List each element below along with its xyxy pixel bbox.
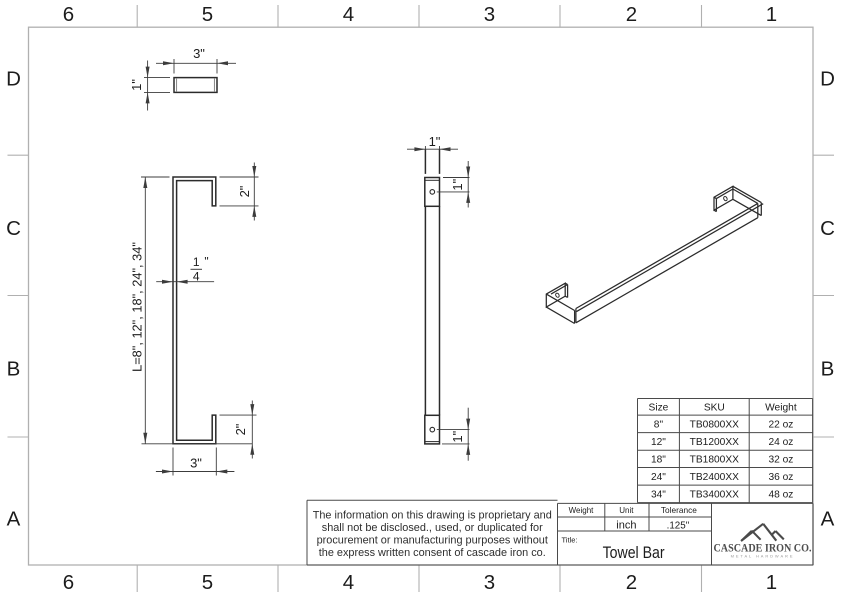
svg-text:A: A — [821, 507, 835, 530]
svg-text:6: 6 — [63, 571, 74, 594]
svg-text:8": 8" — [654, 420, 664, 431]
svg-text:1": 1" — [450, 178, 465, 190]
svg-text:1": 1" — [429, 134, 441, 149]
svg-text:D: D — [6, 67, 21, 90]
svg-text:3": 3" — [193, 46, 205, 61]
svg-text:The information on this drawin: The information on this drawing is propr… — [313, 509, 552, 521]
svg-text:1": 1" — [129, 79, 144, 91]
svg-text:TB1200XX: TB1200XX — [690, 437, 739, 448]
svg-text:3: 3 — [484, 3, 495, 26]
svg-text:Towel Bar: Towel Bar — [603, 544, 666, 562]
svg-text:6: 6 — [63, 3, 74, 26]
svg-text:3": 3" — [190, 456, 202, 471]
svg-text:C: C — [6, 217, 21, 240]
svg-text:32 oz: 32 oz — [768, 455, 793, 466]
svg-text:2": 2" — [237, 185, 252, 197]
svg-text:Size: Size — [649, 403, 669, 414]
svg-text:4: 4 — [343, 571, 354, 594]
svg-text:24 oz: 24 oz — [768, 437, 793, 448]
svg-text:Unit: Unit — [619, 506, 634, 515]
svg-text:2: 2 — [626, 571, 637, 594]
svg-text:Weight: Weight — [765, 403, 797, 414]
svg-text:5: 5 — [202, 571, 213, 594]
svg-text:24": 24" — [651, 472, 666, 483]
svg-text:2": 2" — [233, 423, 248, 435]
svg-text:C: C — [820, 217, 835, 240]
svg-text:Title:: Title: — [562, 535, 578, 544]
svg-text:TB1800XX: TB1800XX — [690, 455, 739, 466]
svg-text:1: 1 — [193, 255, 200, 269]
svg-text:2: 2 — [626, 3, 637, 26]
svg-text:34": 34" — [651, 490, 666, 501]
svg-text:22 oz: 22 oz — [768, 420, 793, 431]
svg-text:D: D — [820, 67, 835, 90]
svg-text:TB2400XX: TB2400XX — [690, 472, 739, 483]
svg-text:1: 1 — [766, 3, 777, 26]
svg-text:shall not be disclosed., used,: shall not be disclosed., used, or duplic… — [322, 522, 543, 534]
svg-text:1": 1" — [450, 430, 465, 442]
svg-text:1: 1 — [766, 571, 777, 594]
svg-text:Weight: Weight — [569, 506, 595, 515]
svg-text:3: 3 — [484, 571, 495, 594]
svg-text:": " — [204, 255, 208, 269]
svg-text:4: 4 — [343, 3, 354, 26]
svg-text:4: 4 — [193, 270, 200, 284]
svg-text:METAL HARDWARE: METAL HARDWARE — [731, 554, 795, 559]
svg-text:the express written consent of: the express written consent of cascade i… — [319, 547, 546, 559]
svg-text:SKU: SKU — [704, 403, 725, 414]
svg-text:12": 12" — [651, 437, 666, 448]
svg-text:B: B — [7, 357, 21, 380]
svg-text:B: B — [821, 357, 835, 380]
svg-text:18": 18" — [651, 455, 666, 466]
svg-text:5: 5 — [202, 3, 213, 26]
svg-text:TB0800XX: TB0800XX — [690, 420, 739, 431]
svg-text:CASCADE IRON CO.: CASCADE IRON CO. — [714, 542, 812, 554]
svg-text:procurement or manufacturing p: procurement or manufacturing purposes wi… — [317, 535, 548, 547]
svg-text:A: A — [7, 507, 21, 530]
svg-text:inch: inch — [616, 519, 636, 531]
svg-text:Tolerance: Tolerance — [661, 505, 697, 515]
svg-text:.125": .125" — [667, 520, 690, 531]
svg-text:TB3400XX: TB3400XX — [690, 490, 739, 501]
svg-text:L=8", 12", 18", 24", 34": L=8", 12", 18", 24", 34" — [129, 242, 144, 372]
svg-text:36 oz: 36 oz — [768, 472, 793, 483]
svg-text:48 oz: 48 oz — [768, 490, 793, 501]
